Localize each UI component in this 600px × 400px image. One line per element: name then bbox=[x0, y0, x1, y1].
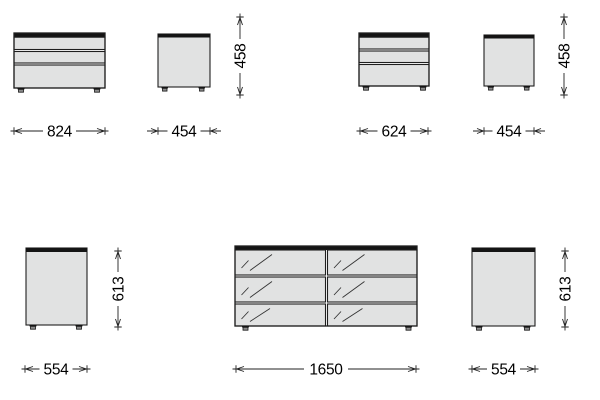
foot-icon bbox=[243, 327, 248, 330]
chest-624-feet bbox=[363, 87, 427, 91]
furniture-drawing: 458 458 824 bbox=[0, 0, 600, 400]
dim-width-824: 824 bbox=[11, 124, 109, 141]
chest-624-drawer-3 bbox=[359, 65, 429, 87]
dim-width-454-left: 454 bbox=[147, 124, 221, 141]
foot-icon bbox=[406, 327, 411, 330]
dresser-drawer-right-3 bbox=[328, 304, 418, 326]
pedestal-454-right-feet bbox=[488, 87, 531, 90]
dim-label-613-right: 613 bbox=[558, 277, 575, 302]
dim-width-624: 624 bbox=[357, 124, 432, 141]
chest-624-drawer-2 bbox=[359, 51, 429, 63]
cabinet-554-right-feet bbox=[476, 327, 531, 330]
dresser-drawer-right-2 bbox=[328, 277, 418, 302]
dim-label-454-left: 454 bbox=[172, 124, 198, 141]
cabinet-554-left-body bbox=[26, 248, 87, 325]
pedestal-454-left-top-panel bbox=[158, 34, 210, 38]
dim-label-1650: 1650 bbox=[309, 362, 343, 379]
foot-icon bbox=[477, 327, 482, 330]
foot-icon bbox=[489, 87, 494, 90]
dim-height-613-left: 613 bbox=[110, 248, 128, 331]
pedestal-454-right-side-view bbox=[484, 35, 534, 90]
dresser-1650-front-view bbox=[235, 246, 417, 330]
dim-label-613-left: 613 bbox=[111, 277, 128, 302]
pedestal-454-left-body bbox=[158, 34, 210, 87]
chest-624-drawer-1 bbox=[359, 37, 429, 49]
foot-icon bbox=[163, 88, 168, 91]
dim-width-554-left: 554 bbox=[22, 362, 91, 379]
dim-label-554-left: 554 bbox=[44, 362, 70, 379]
foot-icon bbox=[525, 327, 530, 330]
cabinet-554-right-side-view bbox=[472, 248, 535, 330]
drawing-canvas: 458 458 824 bbox=[0, 0, 600, 400]
dim-width-554-right: 554 bbox=[469, 362, 539, 379]
dresser-drawer-left-2 bbox=[235, 277, 326, 302]
cabinet-554-right-body bbox=[472, 248, 535, 326]
dresser-drawer-left-1 bbox=[235, 250, 326, 275]
chest-824-drawer-3 bbox=[14, 65, 105, 88]
foot-icon bbox=[364, 87, 369, 90]
dim-label-824: 824 bbox=[47, 124, 73, 141]
foot-icon bbox=[200, 88, 205, 91]
cabinet-554-left-feet bbox=[30, 326, 83, 329]
dim-height-458-right: 458 bbox=[556, 14, 574, 99]
dim-label-624: 624 bbox=[382, 124, 408, 141]
pedestal-454-left-feet bbox=[162, 88, 206, 91]
cabinet-554-left-top-panel bbox=[26, 248, 87, 252]
chest-824-front-view bbox=[14, 33, 105, 92]
foot-icon bbox=[421, 87, 426, 90]
foot-icon bbox=[525, 87, 530, 90]
dim-width-1650: 1650 bbox=[233, 362, 420, 379]
foot-icon bbox=[31, 326, 36, 329]
dim-label-454-right: 454 bbox=[497, 124, 523, 141]
cabinet-554-left-side-view bbox=[26, 248, 87, 329]
pedestal-454-right-top-panel bbox=[484, 35, 534, 39]
dresser-1650-feet bbox=[242, 327, 412, 330]
pedestal-454-right-body bbox=[484, 35, 534, 86]
chest-624-front-view bbox=[359, 33, 429, 90]
foot-icon bbox=[95, 89, 100, 92]
dresser-drawer-left-3 bbox=[235, 304, 326, 326]
cabinet-554-right-top-panel bbox=[472, 248, 535, 252]
pedestal-454-left-side-view bbox=[158, 34, 210, 91]
foot-icon bbox=[19, 89, 24, 92]
chest-824-drawer-1 bbox=[14, 37, 105, 49]
chest-824-feet bbox=[18, 89, 101, 93]
dresser-drawer-right-1 bbox=[328, 250, 418, 275]
dim-label-458-left: 458 bbox=[233, 44, 250, 69]
dim-width-454-right: 454 bbox=[473, 124, 545, 141]
dim-label-458-right: 458 bbox=[557, 44, 574, 69]
dim-height-458-left: 458 bbox=[232, 14, 250, 99]
dim-label-554-right: 554 bbox=[491, 362, 517, 379]
foot-icon bbox=[77, 326, 82, 329]
chest-824-drawer-2 bbox=[14, 52, 105, 64]
dim-height-613-right: 613 bbox=[557, 248, 575, 331]
